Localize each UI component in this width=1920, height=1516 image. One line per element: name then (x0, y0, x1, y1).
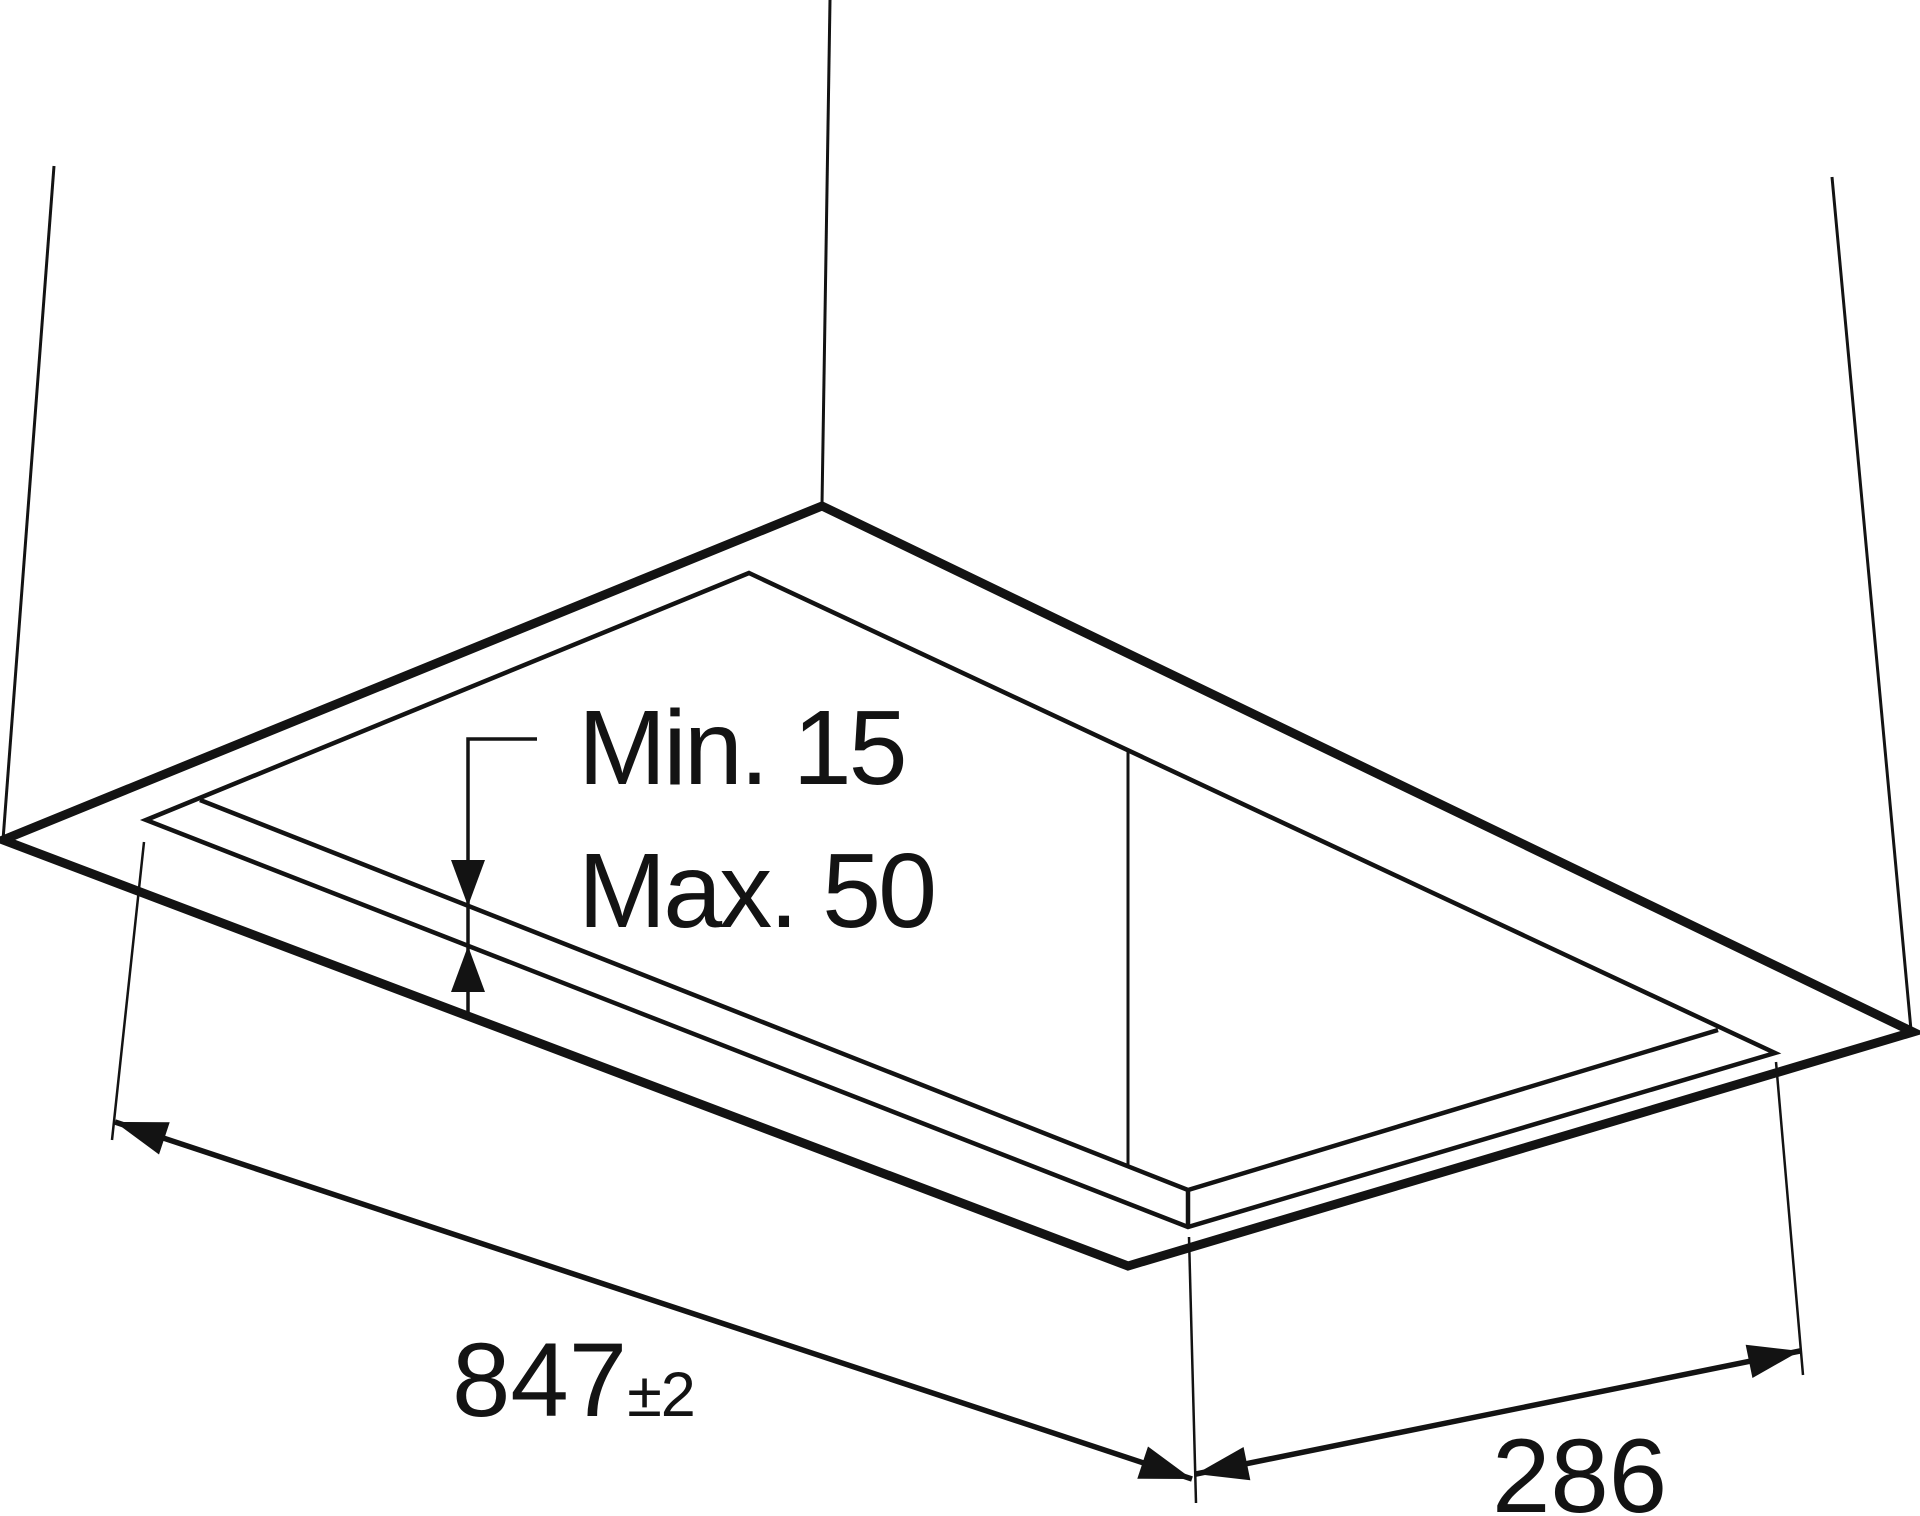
cutout-rim-inner (200, 800, 1718, 1190)
thickness-min-text: Min. 15 (578, 677, 934, 820)
arrowhead-length-left (115, 1122, 170, 1154)
length-dimension-label: 847±2 (452, 1318, 695, 1444)
thickness-max-text: Max. 50 (578, 820, 934, 963)
suspension-line-right (1832, 177, 1911, 1030)
ceiling-opening-outer (3, 506, 1913, 1266)
arrowhead-thickness-up (451, 946, 485, 992)
extension-line-bottom (1189, 1237, 1196, 1503)
length-value-text: 847 (452, 1322, 627, 1439)
installation-diagram: Min. 15 Max. 50 847±2 286 (0, 0, 1920, 1516)
depth-dimension-label: 286 (1492, 1414, 1667, 1516)
extension-line-right (1776, 1062, 1803, 1375)
thickness-dimension-label: Min. 15 Max. 50 (578, 677, 934, 963)
suspension-line-left (3, 166, 54, 840)
length-tolerance-text: ±2 (627, 1360, 695, 1430)
drawing-canvas (0, 0, 1920, 1516)
cutout-rim-upper (146, 573, 1775, 1227)
arrowhead-depth-left (1196, 1447, 1250, 1480)
arrowhead-depth-right (1746, 1345, 1800, 1378)
arrowhead-length-right (1137, 1447, 1192, 1479)
suspension-line-top (822, 0, 830, 505)
